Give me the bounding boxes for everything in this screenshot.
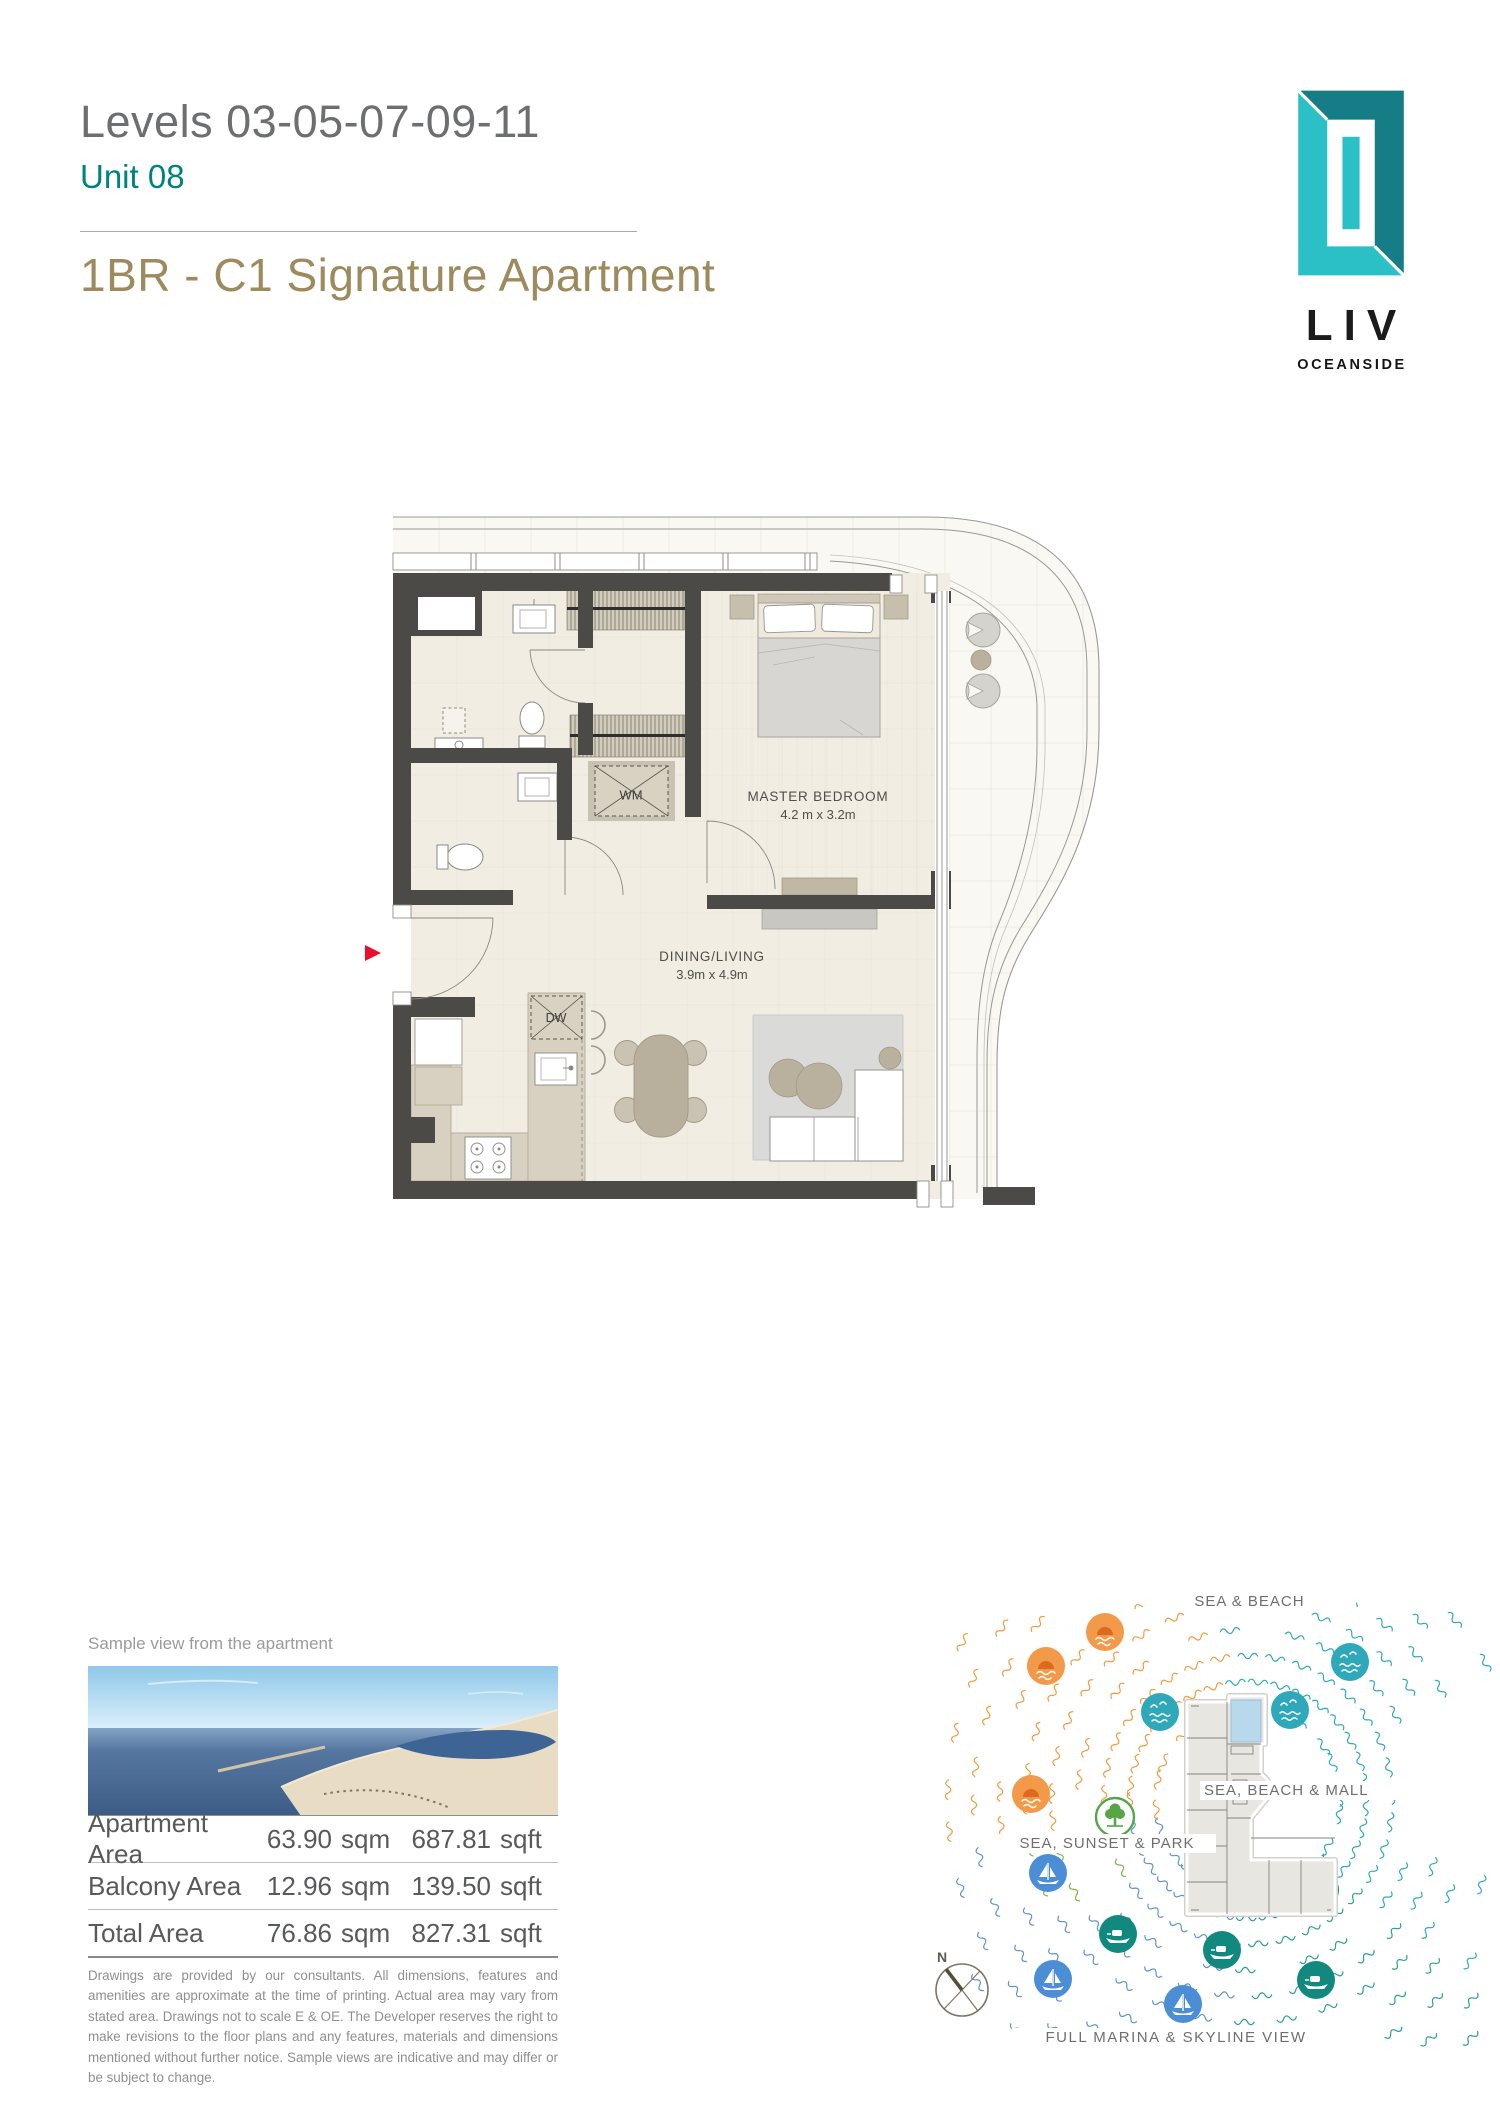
logo-tagline: OCEANSIDE xyxy=(1283,357,1419,373)
area-sqft-value: 139.50 xyxy=(399,1871,491,1902)
window-wall xyxy=(935,591,949,1181)
view-caption: Sample view from the apartment xyxy=(88,1634,333,1654)
yacht-view-icon xyxy=(1099,1915,1137,1953)
yacht-view-icon xyxy=(1297,1961,1335,1999)
area-sqm-value: 63.90 xyxy=(248,1824,332,1855)
sunset-view-icon xyxy=(1012,1775,1050,1813)
entry-arrow-icon xyxy=(365,945,381,961)
building-footprint xyxy=(1165,1688,1365,1933)
compass-needle xyxy=(946,1969,962,1990)
washing-machine-closet: WM xyxy=(588,761,675,821)
area-label: Apartment Area xyxy=(88,1808,248,1870)
island-sink xyxy=(535,1053,577,1085)
unit-number: Unit 08 xyxy=(80,158,185,196)
table-row: Balcony Area 12.96 sqm 139.50 sqft xyxy=(88,1863,558,1910)
sqft-unit: sqft xyxy=(491,1871,558,1902)
sunset-view-icon xyxy=(1086,1613,1124,1651)
park-view-icon xyxy=(1096,1798,1134,1836)
sqm-unit: sqm xyxy=(332,1918,399,1949)
bed xyxy=(758,594,880,737)
table-row: Total Area 76.86 sqm 827.31 sqft xyxy=(88,1910,558,1958)
table-row: Apartment Area 63.90 sqm 687.81 sqft xyxy=(88,1816,558,1863)
tv-console xyxy=(762,909,877,929)
area-sqm-value: 76.86 xyxy=(248,1918,332,1949)
area-sqft-value: 687.81 xyxy=(399,1824,491,1855)
sea-view-icon xyxy=(1331,1643,1369,1681)
header-divider xyxy=(80,231,637,232)
disclaimer-text: Drawings are provided by our consultants… xyxy=(88,1966,558,2088)
brochure-page: Levels 03-05-07-09-11 Unit 08 1BR - C1 S… xyxy=(0,0,1500,2121)
dining-living-dims: 3.9m x 4.9m xyxy=(676,967,748,982)
areas-table: Apartment Area 63.90 sqm 687.81 sqft Bal… xyxy=(88,1815,558,1958)
area-label: Total Area xyxy=(88,1918,248,1949)
compass-north-label: N xyxy=(937,1949,947,1965)
master-bedroom-label: MASTER BEDROOM xyxy=(748,789,889,804)
balcony-table xyxy=(971,650,991,670)
yacht-view-icon xyxy=(1203,1931,1241,1969)
page-title: 1BR - C1 Signature Apartment xyxy=(80,248,715,302)
area-label: Balcony Area xyxy=(88,1871,248,1902)
sunset-view-icon xyxy=(1027,1647,1065,1685)
nightstand xyxy=(884,595,908,619)
sqft-unit: sqft xyxy=(491,1918,558,1949)
sample-view-photo xyxy=(88,1666,558,1816)
area-sqft-value: 827.31 xyxy=(399,1918,491,1949)
floor-plan: WM xyxy=(360,505,1115,1235)
marina-view-icon xyxy=(1164,1985,1202,2023)
logo-wordmark: LIV xyxy=(1283,301,1419,351)
area-sqm-value: 12.96 xyxy=(248,1871,332,1902)
liv-logo-icon xyxy=(1285,84,1417,282)
compass: N xyxy=(915,1940,1005,2030)
dining-living-label: DINING/LIVING xyxy=(659,949,765,964)
view-label-sea-beach-mall: SEA, BEACH & MALL xyxy=(1200,1781,1408,1800)
marina-view-icon xyxy=(1029,1854,1067,1892)
sqm-unit: sqm xyxy=(332,1824,399,1855)
wm-label: WM xyxy=(619,787,642,802)
marina-view-icon xyxy=(1034,1960,1072,1998)
unit-08-highlight xyxy=(1231,1700,1261,1742)
bed-bench xyxy=(782,878,857,895)
dw-label: DW xyxy=(546,1011,567,1025)
brand-logo: LIV OCEANSIDE xyxy=(1283,84,1419,373)
master-bedroom-dims: 4.2 m x 3.2m xyxy=(780,807,855,822)
stove xyxy=(465,1137,511,1179)
sqft-unit: sqft xyxy=(491,1824,558,1855)
view-label-full-marina: FULL MARINA & SKYLINE VIEW xyxy=(1012,2028,1340,2047)
nightstand xyxy=(730,595,754,619)
view-label-sea-sunset-park: SEA, SUNSET & PARK xyxy=(998,1834,1216,1853)
dining-table xyxy=(634,1035,688,1137)
levels-heading: Levels 03-05-07-09-11 xyxy=(80,96,540,148)
view-label-sea-beach: SEA & BEACH xyxy=(1143,1592,1356,1611)
sqm-unit: sqm xyxy=(332,1871,399,1902)
